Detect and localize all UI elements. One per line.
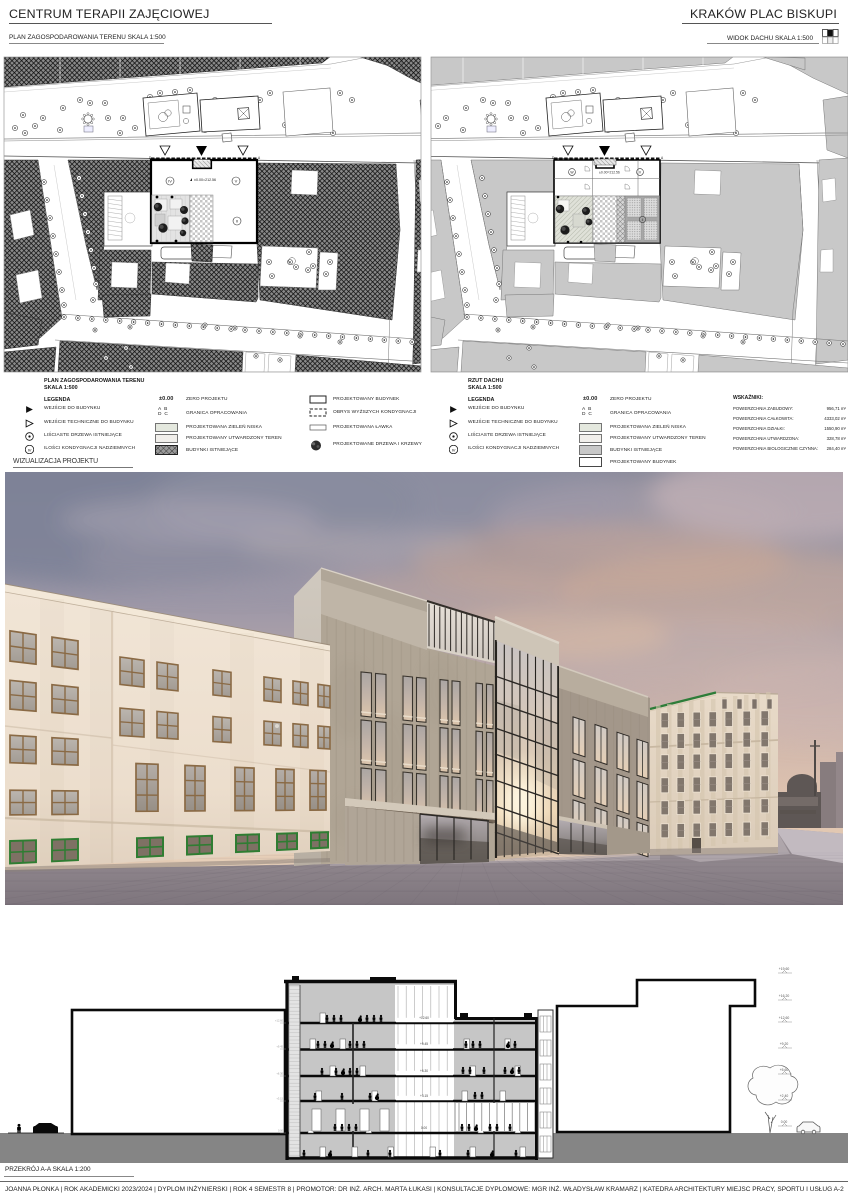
svg-text:+6.30: +6.30 (276, 1072, 283, 1076)
svg-text:+12.60: +12.60 (419, 1016, 429, 1020)
svg-text:+12.60: +12.60 (275, 1019, 284, 1023)
svg-text:+16.20: +16.20 (779, 994, 790, 998)
svg-text:+9.45: +9.45 (420, 1042, 428, 1046)
svg-text:+12.60: +12.60 (779, 1016, 790, 1020)
svg-text:+3.15: +3.15 (276, 1097, 283, 1101)
svg-text:+3.15: +3.15 (420, 1094, 428, 1098)
svg-text:+6.30: +6.30 (420, 1069, 428, 1073)
svg-text:+9.20: +9.20 (780, 1042, 789, 1046)
svg-text:0.00: 0.00 (421, 1126, 427, 1130)
svg-text:+5.60: +5.60 (780, 1068, 789, 1072)
svg-text:0.00: 0.00 (781, 1120, 788, 1124)
svg-text:+9.45: +9.45 (276, 1045, 283, 1049)
svg-text:0.00: 0.00 (278, 1129, 284, 1133)
svg-text:+19.60: +19.60 (779, 967, 790, 971)
svg-text:+2.40: +2.40 (780, 1094, 789, 1098)
